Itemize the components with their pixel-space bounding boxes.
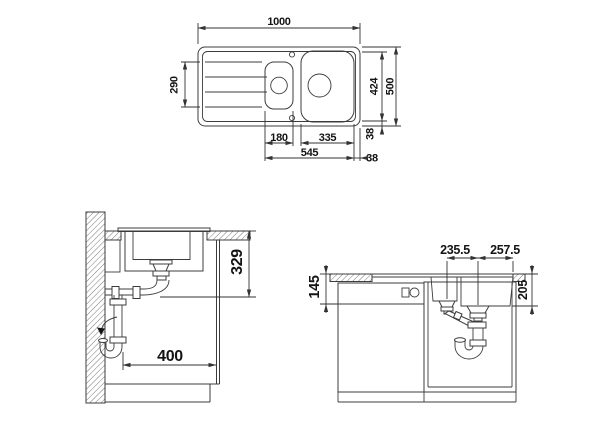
dim-label-small-bowl-width: 180 [270,132,288,144]
appliance-knob [410,288,419,297]
dim-label-overall-depth: 500 [385,78,397,96]
dim-clearance-depth: 329 [160,231,256,297]
main-bowl-strainer [467,306,489,321]
small-bowl [265,62,293,109]
main-bowl [301,51,354,122]
dim-label-drainboard-length: 290 [169,76,181,94]
dim-label-bowl-depth: 205 [516,280,530,300]
dim-label-drain-to-edge: 257.5 [490,243,520,257]
dim-label-overall-width: 1000 [267,16,290,28]
dim-label-main-bowl-width: 335 [319,132,337,144]
dim-bowl-widths: 180 335 545 38 [265,111,378,165]
wall-section [86,212,105,403]
appliance-front [338,283,424,392]
side-section-view: 329 400 [86,212,256,403]
plinth-base [338,392,516,402]
dim-overall-width: 1000 [198,16,360,44]
front-section-view: 235.5 257.5 205 145 [307,243,538,402]
dim-label-bowls-total-width: 545 [301,147,319,159]
dim-label-rim-gap-horizontal: 38 [366,153,378,165]
top-view-plan: 1000 500 424 38 290 [169,16,402,165]
drawing-page: 1000 500 424 38 290 [0,0,600,430]
dim-label-clearance-depth: 329 [229,249,246,275]
tap-hole-bottom [289,115,294,120]
small-bowl-drain [271,77,288,94]
waste-strainer [150,260,172,280]
dim-label-drain-spacing: 235.5 [440,243,470,257]
small-bowl-profile [431,277,457,301]
worktop-left-section [105,231,121,240]
wall-batten [105,240,120,272]
worktop-right-section [207,231,250,240]
dim-label-rim-gap-vertical: 38 [365,128,377,140]
basin-inner-profile [133,232,190,260]
dim-depths-right: 500 424 38 [362,47,401,140]
dim-appliance-top-height: 145 [307,265,338,313]
dim-label-min-cabinet-width: 400 [157,348,183,365]
appliance-button [402,288,409,297]
technical-drawing: 1000 500 424 38 290 [0,0,600,430]
sink-cabinet-front [424,282,516,392]
main-bowl-drain [308,74,331,97]
tap-hole-top [289,52,294,57]
drain-trap-pipes [99,280,170,358]
dim-label-appliance-top-height: 145 [307,275,323,299]
dim-min-cabinet-width: 400 [123,348,216,370]
worktop-front-left-section [330,274,372,282]
dim-label-inner-depth: 424 [369,77,381,96]
drainboard-grooves [205,62,267,107]
main-bowl-profile [461,277,513,306]
sink-outer-rim [198,47,360,126]
dim-drainboard-length: 290 [169,62,201,107]
